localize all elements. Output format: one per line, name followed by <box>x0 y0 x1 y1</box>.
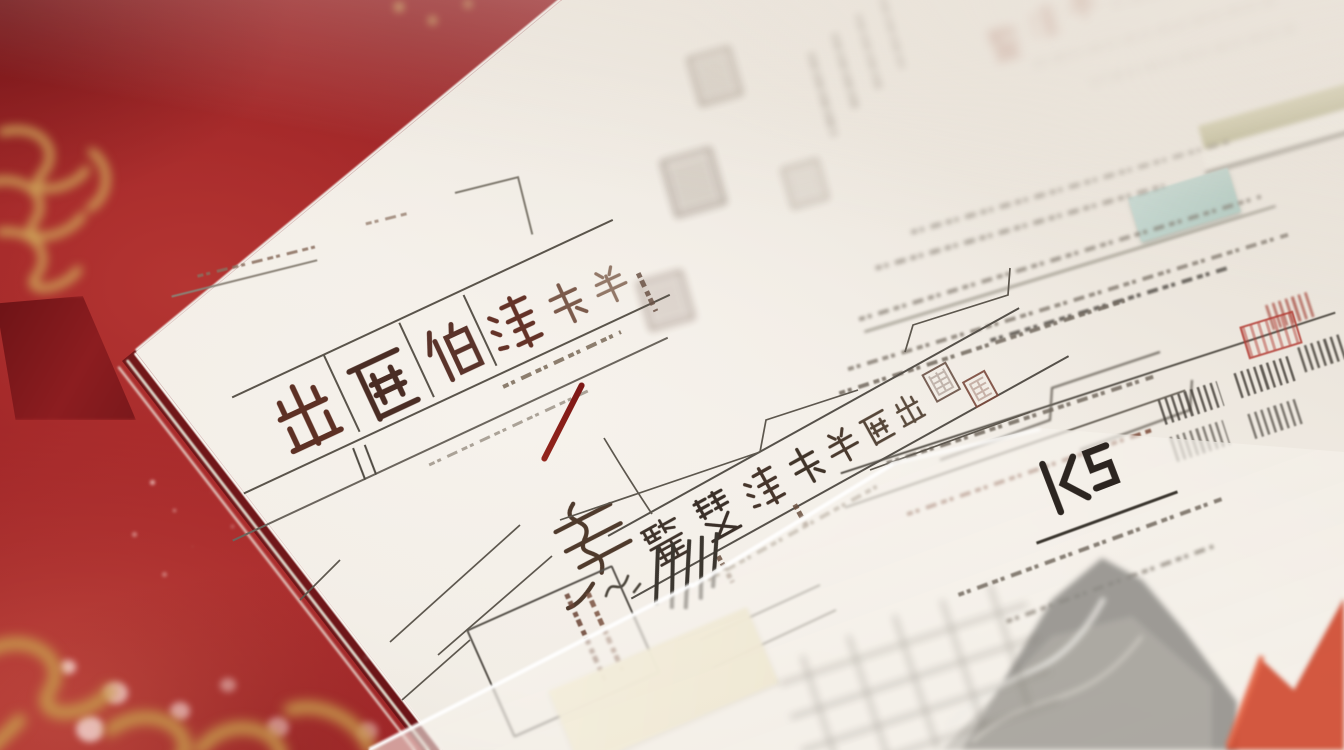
red-area-chart <box>1198 540 1344 750</box>
text-line <box>1091 26 1295 84</box>
fabric-speckles <box>150 480 155 485</box>
bracket-line <box>455 176 519 194</box>
barcode-rows <box>1150 290 1344 460</box>
bar-stroke <box>670 543 675 609</box>
tick-cluster <box>1297 334 1344 373</box>
blurred-text-column <box>880 0 905 68</box>
blurred-text-column <box>809 53 837 135</box>
bar-stroke <box>684 539 692 609</box>
stamp-glyph <box>687 46 743 106</box>
blurred-text-column <box>832 34 859 112</box>
gold-embroidery <box>388 0 488 40</box>
text-line-small <box>365 212 408 226</box>
photo-canvas <box>0 0 1344 750</box>
tick-cluster <box>1233 356 1296 399</box>
gold-embroidery <box>0 112 152 312</box>
tick-cluster <box>1247 399 1303 439</box>
bar-stroke <box>699 536 704 600</box>
text-line <box>875 184 1164 271</box>
tick-mark <box>364 444 377 475</box>
stamp-glyph <box>962 370 999 409</box>
text-line-small <box>429 388 593 467</box>
tick-cluster <box>1158 381 1225 425</box>
bar-stroke <box>711 532 719 588</box>
red-booklet <box>0 296 136 420</box>
bracket-drop <box>517 176 533 235</box>
blurred-text-column <box>856 15 882 89</box>
tick-cluster <box>1169 420 1230 462</box>
stamp-glyph <box>660 147 726 217</box>
bar-stroke <box>654 547 660 605</box>
tick-mark <box>352 448 366 480</box>
